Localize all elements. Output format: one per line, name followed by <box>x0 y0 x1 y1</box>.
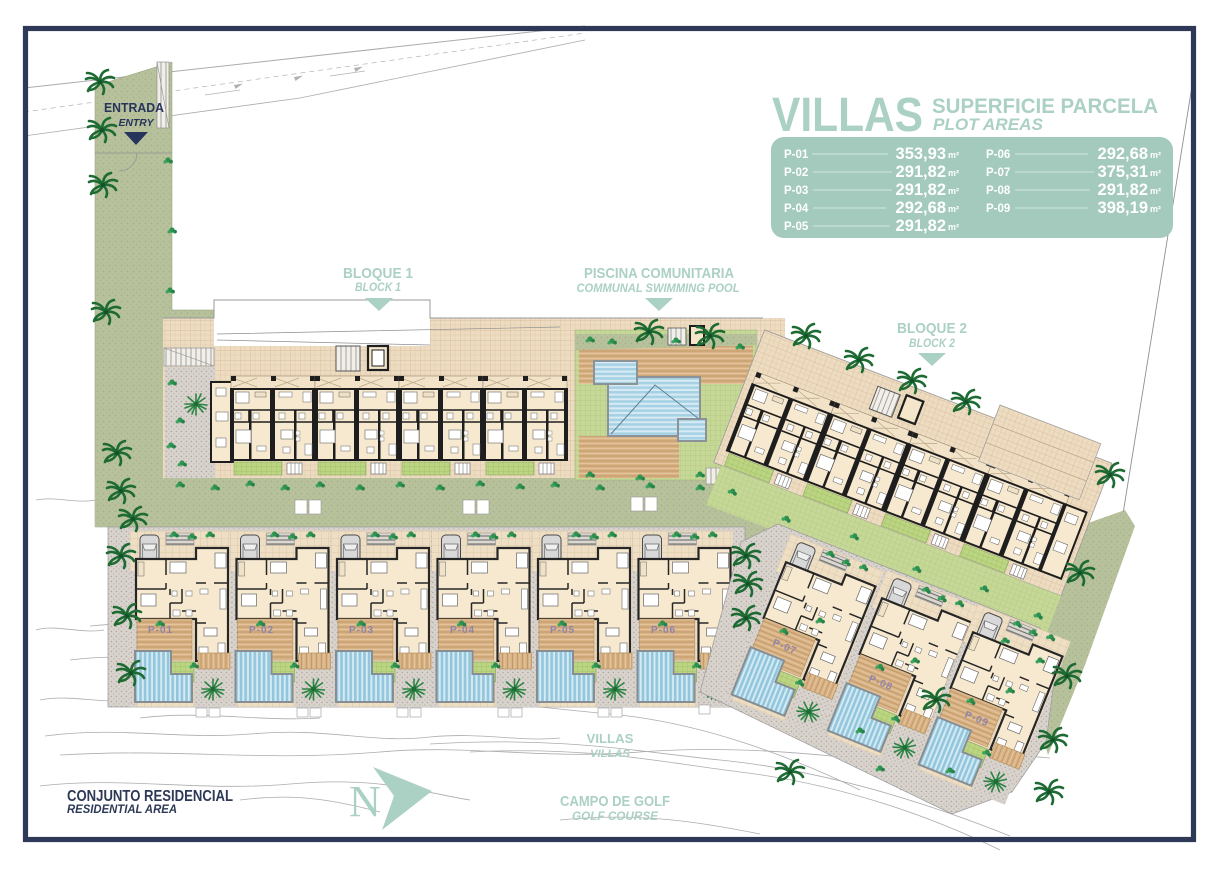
svg-text:P-05: P-05 <box>784 221 809 233</box>
svg-text:m²: m² <box>948 186 959 196</box>
svg-text:CONJUNTO RESIDENCIAL: CONJUNTO RESIDENCIAL <box>67 788 233 805</box>
svg-text:375,31: 375,31 <box>1098 163 1148 181</box>
svg-text:m²: m² <box>1150 186 1161 196</box>
svg-text:m²: m² <box>948 168 959 178</box>
svg-text:P-04: P-04 <box>784 203 809 215</box>
svg-text:m²: m² <box>948 204 959 214</box>
svg-text:292,68: 292,68 <box>896 199 946 217</box>
svg-text:m²: m² <box>948 150 959 160</box>
svg-text:P-02: P-02 <box>249 625 274 636</box>
svg-text:GOLF COURSE: GOLF COURSE <box>572 809 659 823</box>
svg-text:P-07: P-07 <box>986 167 1010 179</box>
svg-text:291,82: 291,82 <box>896 163 946 181</box>
svg-text:291,82: 291,82 <box>896 181 946 199</box>
svg-text:VILLAS: VILLAS <box>587 731 634 746</box>
svg-text:P-05: P-05 <box>550 625 575 636</box>
svg-text:291,82: 291,82 <box>896 217 946 235</box>
svg-text:m²: m² <box>1150 150 1161 160</box>
svg-text:ENTRY: ENTRY <box>119 117 155 129</box>
svg-text:P-08: P-08 <box>986 185 1011 197</box>
svg-text:398,19: 398,19 <box>1098 199 1148 217</box>
svg-text:291,82: 291,82 <box>1098 181 1148 199</box>
svg-text:ENTRADA: ENTRADA <box>104 101 164 115</box>
svg-text:BLOCK 1: BLOCK 1 <box>355 280 401 294</box>
svg-text:m²: m² <box>948 222 959 232</box>
svg-text:P-06: P-06 <box>651 625 676 636</box>
svg-text:292,68: 292,68 <box>1098 145 1148 163</box>
svg-text:353,93: 353,93 <box>896 145 946 163</box>
svg-text:P-01: P-01 <box>148 625 173 636</box>
svg-text:BLOCK 2: BLOCK 2 <box>909 336 955 350</box>
svg-text:RESIDENTIAL AREA: RESIDENTIAL AREA <box>67 804 177 816</box>
svg-text:PLOT AREAS: PLOT AREAS <box>933 115 1044 134</box>
svg-text:VILLAS: VILLAS <box>590 748 631 760</box>
svg-text:COMMUNAL SWIMMING POOL: COMMUNAL SWIMMING POOL <box>577 283 740 295</box>
svg-text:P-03: P-03 <box>349 625 374 636</box>
svg-text:P-02: P-02 <box>784 167 808 179</box>
svg-text:BLOQUE 2: BLOQUE 2 <box>897 320 967 337</box>
svg-text:P-09: P-09 <box>986 203 1010 215</box>
svg-text:PISCINA COMUNITARIA: PISCINA COMUNITARIA <box>584 265 734 282</box>
svg-text:CAMPO DE GOLF: CAMPO DE GOLF <box>560 793 670 810</box>
svg-text:P-04: P-04 <box>450 625 475 636</box>
svg-text:m²: m² <box>1150 168 1161 178</box>
svg-text:P-01: P-01 <box>784 149 809 161</box>
svg-text:P-03: P-03 <box>784 185 808 197</box>
svg-text:N: N <box>349 777 381 826</box>
svg-text:m²: m² <box>1150 204 1161 214</box>
svg-text:P-06: P-06 <box>986 149 1010 161</box>
svg-text:VILLAS: VILLAS <box>772 89 923 142</box>
